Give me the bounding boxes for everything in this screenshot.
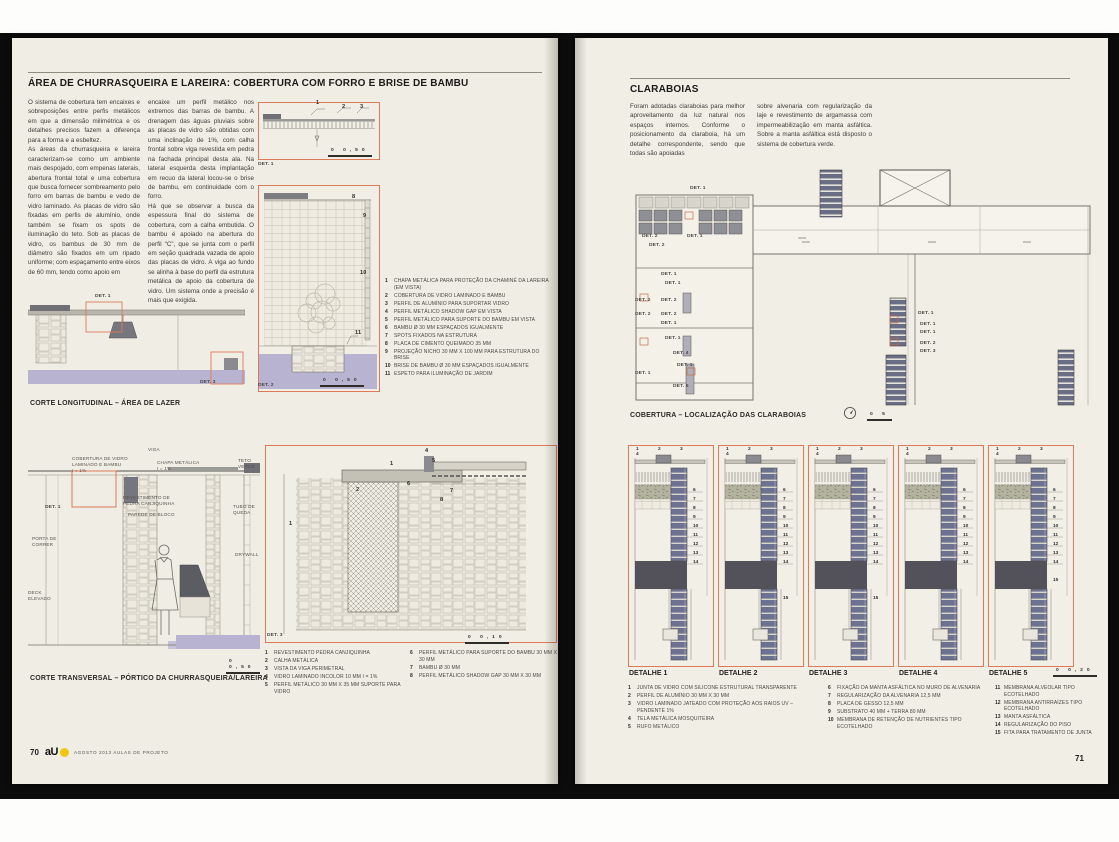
legend-number: 4	[265, 674, 274, 681]
annotation-label: DET. 1	[95, 294, 111, 300]
legend-item: 8 PLACA DE CIMENTO QUEIMADO 35 MM	[385, 341, 555, 348]
panel-callouts-top: 1 2 3 4	[636, 447, 713, 457]
det3-annotations: 12456781DET. 30 0,10	[265, 445, 555, 645]
left-article-title: ÁREA DE CHURRASQUEIRA E LAREIRA: COBERTU…	[28, 78, 548, 89]
annotation-label: 1	[316, 100, 319, 107]
panel-callouts-side: 6 7 8 9 10 11 12 13 14 15	[1053, 486, 1058, 585]
legend-number: 8	[410, 673, 419, 680]
legend-text: REGULARIZAÇÃO DO PISO	[1004, 722, 1071, 729]
plan-det-label: DET. 1	[920, 330, 936, 336]
panel-callouts-top: 1 2 3 4	[726, 447, 803, 457]
annotation-label: TETO VERDE	[238, 458, 255, 470]
roof-plan-labels: DET. 1DET. 2DET. 1DET. 2DET. 1DET. 1DET.…	[628, 168, 1098, 408]
annotation-label: 1	[289, 521, 292, 528]
legend-item: 3 VIDRO LAMINADO JATEADO COM PROTEÇÃO AO…	[628, 701, 820, 714]
legend-item: 8 PLACA DE GESSO 12,5 MM	[828, 701, 988, 708]
legend-text: PERFIL DE ALUMÍNIO 30 MM X 30 MM	[637, 693, 729, 700]
legend-number: 9	[828, 709, 837, 716]
legend-item: 1 JUNTA DE VIDRO COM SILICONE ESTRUTURAL…	[628, 685, 820, 692]
annotation-label: CHAPA METÁLICA I = 1%	[157, 460, 199, 472]
left-intro-column-2: encaixe um perfil metálico nos extremos …	[148, 98, 254, 306]
left-footer: 70 aU AGOSTO 2013 AULAS DE PROJETO	[30, 746, 168, 758]
plan-det-label: DET. 1	[665, 281, 681, 287]
legend-text: VIDRO LAMINADO JATEADO COM PROTEÇÃO AOS …	[637, 701, 820, 714]
annotation-label: DET. 1	[258, 162, 274, 168]
plan-det-label: DET. 1	[635, 371, 651, 377]
legend-item: 3 PERFIL DE ALUMÍNIO PARA SUPORTAR VIDRO	[385, 301, 555, 308]
page-number-left: 70	[30, 748, 39, 757]
legend-number: 1	[385, 278, 394, 291]
legend-item: 7 REGULARIZAÇÃO DA ALVENARIA 12,5 MM	[828, 693, 988, 700]
plan-det-label: DET. 1	[661, 272, 677, 278]
legend-item: 5 PERFIL METÁLICO 30 MM X 35 MM SUPORTE …	[265, 682, 403, 695]
plan-det-label: DET. 2	[642, 234, 658, 240]
legend-item: 11 MEMBRANA ALVEOLAR TIPO ECOTELHADO	[995, 685, 1100, 698]
legend-item: 14 REGULARIZAÇÃO DO PISO	[995, 722, 1100, 729]
corte-longitudinal-annotations: DET. 1DET. 3	[28, 300, 245, 395]
detail-panel: 1 2 3 4 6 7 8 9 10 11 12 13 14 15 DETALH…	[988, 445, 1074, 667]
legend-number: 10	[828, 717, 837, 730]
right-legend-col1: 1 JUNTA DE VIDRO COM SILICONE ESTRUTURAL…	[628, 685, 820, 732]
legend-item: 13 MANTA ASFÁLTICA	[995, 714, 1100, 721]
annotation-label: DET. 2	[258, 383, 274, 389]
logo-text: aU	[45, 746, 58, 758]
legend-number: 6	[828, 685, 837, 692]
detail-scale-bar: 0 0,20	[1053, 668, 1097, 677]
legend-item: 9 SUBSTRATO 40 MM + TERRA 80 MM	[828, 709, 988, 716]
legend-item: 1 REVESTIMENTO PEDRA CANJIQUINHA	[265, 650, 403, 657]
legend-item: 5 RUFO METÁLICO	[628, 724, 820, 731]
legend-item: 3 VISTA DA VIGA PERIMETRAL	[265, 666, 403, 673]
right-legend-col3: 11 MEMBRANA ALVEOLAR TIPO ECOTELHADO 12 …	[995, 685, 1100, 738]
legend-item: 1 CHAPA METÁLICA PARA PROTEÇÃO DA CHAMIN…	[385, 278, 555, 291]
page-right: CLARABOIAS Foram adotadas claraboias par…	[575, 38, 1108, 784]
legend-number: 11	[385, 371, 394, 378]
plan-det-label: DET. 1	[677, 363, 693, 369]
annotation-label: DET. 3	[200, 380, 216, 386]
detail-panel-svg	[629, 446, 713, 666]
legend-text: JUNTA DE VIDRO COM SILICONE ESTRUTURAL T…	[637, 685, 797, 692]
detail-panel-title: DETALHE 2	[719, 670, 757, 677]
legend-text: VISTA DA VIGA PERIMETRAL	[274, 666, 345, 673]
plan-det-label: DET. 5	[673, 384, 689, 390]
legend-number: 1	[628, 685, 637, 692]
footer-issue-text: AGOSTO 2013 AULAS DE PROJETO	[74, 750, 169, 755]
legend-text: FITA PARA TRATAMENTO DE JUNTA	[1004, 730, 1092, 737]
legend-bottom-a: 1 REVESTIMENTO PEDRA CANJIQUINHA 2 CALHA…	[265, 650, 403, 697]
legend-item: 4 VIDRO LAMINADO INCOLOR 10 MM I = 1%	[265, 674, 403, 681]
annotation-label: COBERTURA DE VIDRO LAMINADO E BAMBU I = …	[72, 456, 128, 474]
page-number-right: 71	[1075, 754, 1084, 763]
annotation-label: 1	[390, 461, 393, 468]
caption-corte-transversal: CORTE TRANSVERSAL – PÓRTICO DA CHURRASQU…	[30, 675, 270, 682]
annotation-label: DET. 1	[45, 505, 61, 511]
panel-callouts-top: 1 2 3 4	[816, 447, 893, 457]
panel-callouts-top: 1 2 3 4	[906, 447, 983, 457]
legend-number: 2	[628, 693, 637, 700]
annotation-label: 0 0,50	[328, 148, 372, 157]
plan-det-label: DET. 2	[661, 298, 677, 304]
legend-item: 4 PERFIL METÁLICO SHADOW GAP EM VISTA	[385, 309, 555, 316]
panel-callouts-top: 1 2 3 4	[996, 447, 1073, 457]
legend-number: 10	[385, 363, 394, 370]
annotation-label: DECK ELEVADO	[28, 590, 51, 602]
legend-item: 6 PERFIL METÁLICO PARA SUPORTE DO BAMBU …	[410, 650, 558, 663]
annotation-label: 0 0,10	[465, 635, 509, 644]
legend-number: 8	[385, 341, 394, 348]
legend-item: 7 SPOTS FIXADOS NA ESTRUTURA	[385, 333, 555, 340]
scanned-magazine-spread: ÁREA DE CHURRASQUEIRA E LAREIRA: COBERTU…	[0, 0, 1119, 842]
legend-text: PLACA DE GESSO 12,5 MM	[837, 701, 904, 708]
legend-item: 2 COBERTURA DE VIDRO LAMINADO E BAMBU	[385, 293, 555, 300]
legend-item: 5 PERFIL METÁLICO PARA SUPORTE DO BAMBU …	[385, 317, 555, 324]
legend-text: TELA METÁLICA MOSQUITEIRA	[637, 716, 714, 723]
plan-det-label: DET. 2	[649, 243, 665, 249]
legend-text: SPOTS FIXADOS NA ESTRUTURA	[394, 333, 477, 340]
right-article-title: CLARABOIAS	[630, 84, 699, 95]
top-rule	[28, 72, 542, 73]
detail-panel: 1 2 3 4 6 7 8 9 10 11 12 13 14 15 DETALH…	[718, 445, 804, 667]
legend-number: 4	[385, 309, 394, 316]
plan-det-label: DET. 2	[661, 312, 677, 318]
detail-panel: 1 2 3 4 6 7 8 9 10 11 12 13 14 15 DETALH…	[808, 445, 894, 667]
plan-det-label: DET. 2	[635, 312, 651, 318]
annotation-label: VIGA	[148, 447, 160, 453]
plan-det-label: DET. 1	[920, 322, 936, 328]
legend-text: SUBSTRATO 40 MM + TERRA 80 MM	[837, 709, 926, 716]
legend-text: PROJEÇÃO NICHO 30 MM X 100 MM PARA ESTRU…	[394, 349, 555, 362]
legend-number: 15	[995, 730, 1004, 737]
plan-det-label: DET. 1	[661, 321, 677, 327]
caption-corte-longitudinal: CORTE LONGITUDINAL – ÁREA DE LAZER	[30, 400, 180, 407]
detail-panel: 1 2 3 4 6 7 8 9 10 11 12 13 14 DETALHE 4	[898, 445, 984, 667]
legend-top: 1 CHAPA METÁLICA PARA PROTEÇÃO DA CHAMIN…	[385, 278, 555, 379]
legend-text: BRISE DE BAMBU Ø 30 MM ESPAÇADOS IGUALME…	[394, 363, 529, 370]
top-rule	[630, 78, 1070, 79]
legend-text: REGULARIZAÇÃO DA ALVENARIA 12,5 MM	[837, 693, 941, 700]
annotation-label: 4	[425, 448, 428, 455]
detail-panel-title: DETALHE 3	[809, 670, 847, 677]
annotation-label: PAREDE DE BLOCO	[128, 512, 175, 518]
annotation-label: 5	[432, 458, 435, 465]
legend-item: 4 TELA METÁLICA MOSQUITEIRA	[628, 716, 820, 723]
legend-number: 12	[995, 700, 1004, 713]
detail-panel-svg	[719, 446, 803, 666]
corte-transversal-annotations: VIGACOBERTURA DE VIDRO LAMINADO E BAMBU …	[28, 445, 260, 673]
legend-bottom-b: 6 PERFIL METÁLICO PARA SUPORTE DO BAMBU …	[410, 650, 558, 681]
legend-text: BAMBU Ø 30 MM ESPAÇADOS IGUALMENTE	[394, 325, 503, 332]
detail-panel-title: DETALHE 1	[629, 670, 667, 677]
legend-text: MEMBRANA ALVEOLAR TIPO ECOTELHADO	[1004, 685, 1100, 698]
legend-number: 7	[410, 665, 419, 672]
legend-text: PERFIL DE ALUMÍNIO PARA SUPORTAR VIDRO	[394, 301, 509, 308]
legend-number: 4	[628, 716, 637, 723]
annotation-label: 11	[355, 330, 361, 337]
legend-number: 5	[385, 317, 394, 324]
legend-text: MEMBRANA DE RETENÇÃO DE NUTRIENTES TIPO …	[837, 717, 988, 730]
legend-item: 10 BRISE DE BAMBU Ø 30 MM ESPAÇADOS IGUA…	[385, 363, 555, 370]
legend-number: 11	[995, 685, 1004, 698]
legend-text: MEMBRANA ANTIRRAÍZES TIPO ECOTELHADO	[1004, 700, 1100, 713]
panel-callouts-side: 6 7 8 9 10 11 12 13 14 15	[783, 486, 788, 603]
legend-text: PERFIL METÁLICO 30 MM X 35 MM SUPORTE PA…	[274, 682, 403, 695]
annotation-label: PORTA DE CORRER	[32, 536, 56, 548]
detail-panel-title: DETALHE 5	[989, 670, 1027, 677]
legend-item: 6 FIXAÇÃO DA MANTA ASFÁLTICA NO MURO DE …	[828, 685, 988, 692]
legend-number: 3	[265, 666, 274, 673]
legend-number: 1	[265, 650, 274, 657]
plan-det-label: DET. 1	[690, 186, 706, 192]
plan-det-label: DET. 3	[920, 349, 936, 355]
legend-number: 3	[385, 301, 394, 308]
right-intro-column-1: Foram adotadas claraboias para melhor ap…	[630, 102, 745, 159]
legend-item: 2 CALHA METÁLICA	[265, 658, 403, 665]
annotation-label: 8	[440, 497, 443, 504]
legend-number: 5	[628, 724, 637, 731]
annotation-label: 6	[407, 481, 410, 488]
panel-callouts-side: 6 7 8 9 10 11 12 13 14	[693, 486, 698, 567]
legend-item: 8 PERFIL METÁLICO SHADOW GAP 30 MM X 30 …	[410, 673, 558, 680]
plan-det-label: DET. 1	[687, 234, 703, 240]
north-arrow-icon	[843, 406, 857, 420]
annotation-label: 9	[363, 213, 366, 220]
caption-roof-plan: COBERTURA – LOCALIZAÇÃO DAS CLARABOIAS	[630, 412, 806, 419]
legend-number: 7	[828, 693, 837, 700]
plan-det-label: DET. 2	[635, 298, 651, 304]
detail-panel-svg	[899, 446, 983, 666]
plan-det-label: DET. 1	[665, 336, 681, 342]
annotation-label: 0 0,50	[320, 378, 364, 387]
annotation-label: 3	[360, 104, 363, 111]
page-left: ÁREA DE CHURRASQUEIRA E LAREIRA: COBERTU…	[12, 38, 558, 784]
legend-text: RUFO METÁLICO	[637, 724, 679, 731]
annotation-label: 2	[356, 487, 359, 494]
legend-number: 6	[410, 650, 419, 663]
legend-number: 13	[995, 714, 1004, 721]
detail-panel-svg	[989, 446, 1073, 666]
annotation-label: DET. 3	[267, 633, 283, 639]
legend-number: 2	[265, 658, 274, 665]
detail-panel-title: DETALHE 4	[899, 670, 937, 677]
annotation-label: 8	[352, 194, 355, 201]
annotation-label: 0 0,50	[226, 659, 260, 674]
right-footer: 71	[1075, 754, 1084, 763]
legend-number: 8	[828, 701, 837, 708]
legend-item: 10 MEMBRANA DE RETENÇÃO DE NUTRIENTES TI…	[828, 717, 988, 730]
legend-number: 6	[385, 325, 394, 332]
legend-text: PERFIL METÁLICO SHADOW GAP EM VISTA	[394, 309, 502, 316]
legend-text: FIXAÇÃO DA MANTA ASFÁLTICA NO MURO DE AL…	[837, 685, 980, 692]
legend-text: VIDRO LAMINADO INCOLOR 10 MM I = 1%	[274, 674, 377, 681]
annotation-label: REVESTIMENTO DE PEDRA CANJIQUINHA	[123, 495, 175, 507]
legend-number: 5	[265, 682, 274, 695]
annotation-label: 10	[360, 270, 367, 277]
legend-text: ESPETO PARA ILUMINAÇÃO DE JARDIM	[394, 371, 493, 378]
logo-yellow-dot-icon	[60, 748, 69, 757]
plan-det-label: DET. 4	[673, 351, 689, 357]
annotation-label: DRYWALL	[235, 552, 258, 558]
legend-item: 7 BAMBU Ø 30 MM	[410, 665, 558, 672]
panel-callouts-side: 6 7 8 9 10 11 12 13 14 15	[873, 486, 878, 603]
au-magazine-logo: aU	[45, 746, 68, 758]
det2-annotations: 891011DET. 20 0,50	[258, 185, 378, 395]
left-intro-column-1: O sistema de cobertura tem encaixes e so…	[28, 98, 140, 277]
legend-item: 6 BAMBU Ø 30 MM ESPAÇADOS IGUALMENTE	[385, 325, 555, 332]
legend-item: 9 PROJEÇÃO NICHO 30 MM X 100 MM PARA EST…	[385, 349, 555, 362]
legend-item: 12 MEMBRANA ANTIRRAÍZES TIPO ECOTELHADO	[995, 700, 1100, 713]
legend-text: CALHA METÁLICA	[274, 658, 318, 665]
legend-text: PLACA DE CIMENTO QUEIMADO 35 MM	[394, 341, 491, 348]
legend-text: CHAPA METÁLICA PARA PROTEÇÃO DA CHAMINÉ …	[394, 278, 555, 291]
legend-text: PERFIL METÁLICO PARA SUPORTE DO BAMBU EM…	[394, 317, 535, 324]
annotation-label: 7	[450, 488, 453, 495]
legend-text: BAMBU Ø 30 MM	[419, 665, 460, 672]
right-legend-col2: 6 FIXAÇÃO DA MANTA ASFÁLTICA NO MURO DE …	[828, 685, 988, 732]
legend-number: 3	[628, 701, 637, 714]
legend-number: 2	[385, 293, 394, 300]
legend-text: PERFIL METÁLICO SHADOW GAP 30 MM X 30 MM	[419, 673, 541, 680]
annotation-label: 2	[342, 104, 345, 111]
legend-text: PERFIL METÁLICO PARA SUPORTE DO BAMBU 30…	[419, 650, 558, 663]
legend-number: 9	[385, 349, 394, 362]
plan-det-label: DET. 1	[918, 311, 934, 317]
det1-annotations: 123DET. 10 0,50	[258, 102, 378, 172]
plan-det-label: DET. 2	[920, 341, 936, 347]
plan-scale-bar: 0 5	[867, 412, 892, 421]
detail-panel: 1 2 3 4 6 7 8 9 10 11 12 13 14 DETALHE 1	[628, 445, 714, 667]
legend-number: 14	[995, 722, 1004, 729]
legend-text: COBERTURA DE VIDRO LAMINADO E BAMBU	[394, 293, 505, 300]
right-intro-column-2: sobre alvenaria com regularização da laj…	[757, 102, 872, 149]
legend-text: REVESTIMENTO PEDRA CANJIQUINHA	[274, 650, 370, 657]
legend-number: 7	[385, 333, 394, 340]
legend-item: 15 FITA PARA TRATAMENTO DE JUNTA	[995, 730, 1100, 737]
legend-item: 11 ESPETO PARA ILUMINAÇÃO DE JARDIM	[385, 371, 555, 378]
detail-panel-svg	[809, 446, 893, 666]
legend-item: 2 PERFIL DE ALUMÍNIO 30 MM X 30 MM	[628, 693, 820, 700]
panel-callouts-side: 6 7 8 9 10 11 12 13 14	[963, 486, 968, 567]
annotation-label: TUBO DE QUEDA	[233, 504, 255, 516]
legend-text: MANTA ASFÁLTICA	[1004, 714, 1050, 721]
